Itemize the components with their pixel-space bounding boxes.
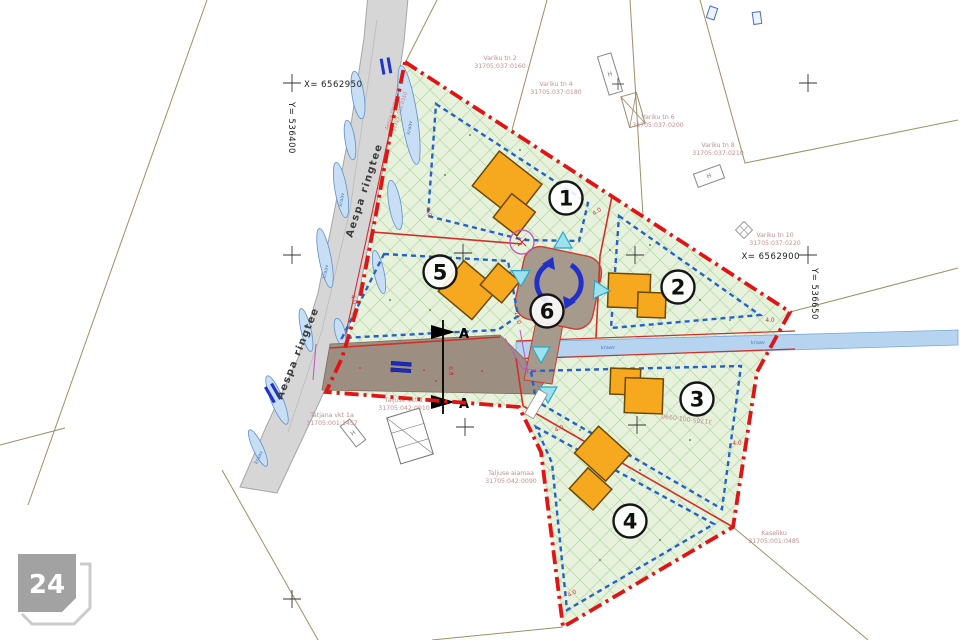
plot-number-3: 3 bbox=[681, 383, 714, 416]
svg-text:2: 2 bbox=[671, 276, 686, 300]
parcel-name: Kaseliku bbox=[761, 530, 787, 537]
map-symbol bbox=[706, 6, 717, 20]
svg-text:6: 6 bbox=[540, 300, 555, 324]
svg-text:5: 5 bbox=[433, 261, 448, 285]
plot-number-4: 4 bbox=[614, 505, 647, 538]
svg-text:4: 4 bbox=[623, 510, 638, 534]
svg-text:4.0: 4.0 bbox=[732, 441, 742, 447]
parcel-code: 31705:037:0180 bbox=[530, 89, 581, 96]
watermark-kv24: 24 bbox=[18, 554, 90, 624]
parcel-code: 31705:037:0160 bbox=[474, 63, 525, 70]
parcel-name: Variku tn 8 bbox=[701, 142, 734, 149]
section-label-top: A bbox=[459, 327, 469, 342]
coord-y-e: Y= 536650 bbox=[809, 267, 819, 320]
parcel-name: Variku tn 10 bbox=[756, 232, 793, 239]
coord-x-e: X= 6562900 bbox=[741, 252, 800, 262]
stream-label: kraav bbox=[751, 340, 765, 346]
watermark-number: 24 bbox=[29, 570, 65, 600]
neighbor-house: H bbox=[693, 165, 724, 188]
survey-diamond bbox=[736, 222, 753, 239]
parcel-name: Variku tn 2 bbox=[483, 55, 516, 62]
coord-y-nw: Y= 536400 bbox=[286, 101, 296, 154]
svg-text:4.0: 4.0 bbox=[765, 318, 775, 324]
neighbor-greenhouse bbox=[387, 408, 434, 464]
parcel-code: 31705:042:0090 bbox=[485, 478, 536, 485]
parcel-code: 31705:037:0220 bbox=[749, 240, 800, 247]
parcel-code: 31705:037:0210 bbox=[692, 150, 743, 157]
parcel-code: 31705:042:0010 bbox=[378, 405, 429, 412]
map-symbol bbox=[752, 12, 762, 25]
parcel-code: 31705:001:0485 bbox=[748, 538, 799, 545]
site-plan-drawing: kraav kraav kraav kraav Aespa ringtee Ae… bbox=[0, 0, 960, 640]
parcel-name: Variku tn 4 bbox=[539, 81, 572, 88]
parcel-code: 31705:037:0200 bbox=[632, 122, 683, 129]
coord-x-nw: X= 6562950 bbox=[304, 80, 363, 90]
svg-text:3: 3 bbox=[690, 388, 705, 412]
plot-number-6: 6 bbox=[531, 295, 564, 328]
svg-text:1: 1 bbox=[559, 187, 574, 211]
parcel-code: 31705:001:1457 bbox=[306, 420, 357, 427]
neighbor-house: H bbox=[597, 53, 622, 95]
plan-canvas: kraav kraav kraav kraav Aespa ringtee Ae… bbox=[0, 0, 960, 640]
stream-label: kraav bbox=[601, 345, 615, 351]
plot-number-2: 2 bbox=[662, 271, 695, 304]
parcel-name: Variku tn 6 bbox=[641, 114, 674, 121]
plot-number-1: 1 bbox=[550, 182, 583, 215]
svg-text:6.0: 6.0 bbox=[447, 366, 454, 376]
parcel-name: Tatjana vkt 1a bbox=[309, 412, 354, 419]
parcel-name: Taljuse aiamaa bbox=[487, 470, 534, 477]
plot-number-5: 5 bbox=[424, 256, 457, 289]
